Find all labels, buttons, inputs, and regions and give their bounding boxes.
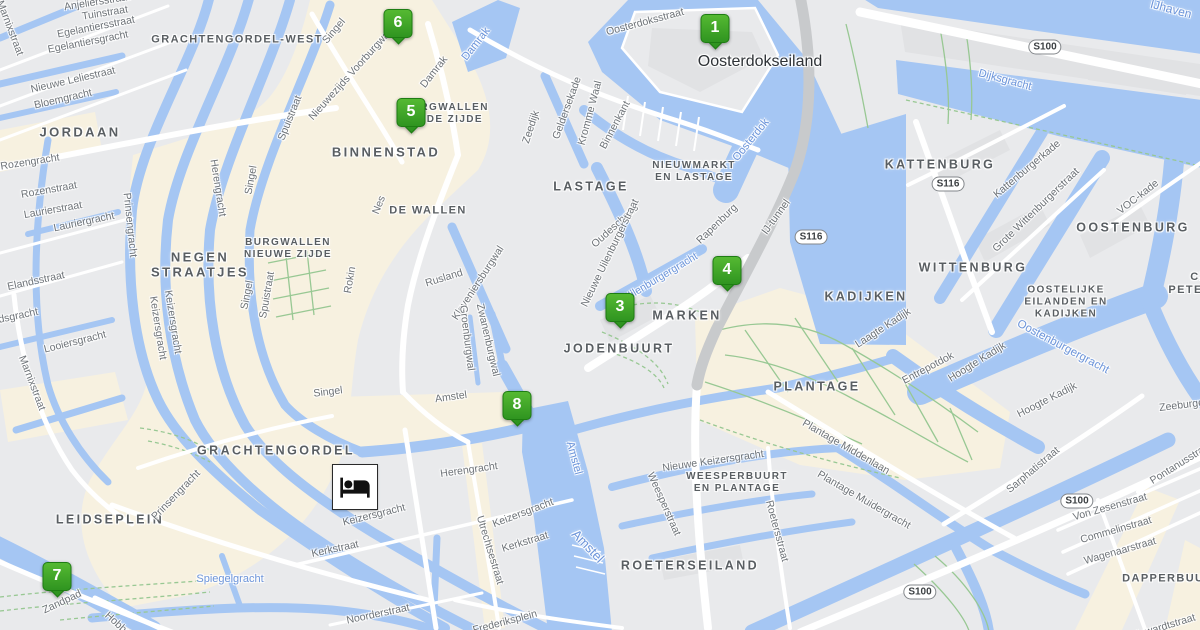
marker-number: 8: [503, 391, 532, 420]
marker-number: 6: [384, 9, 413, 38]
map-marker-4[interactable]: 4: [713, 256, 742, 285]
bed-icon: [339, 471, 371, 503]
marker-number: 1: [701, 14, 730, 43]
map-marker-8[interactable]: 8: [503, 391, 532, 420]
marker-number: 7: [43, 562, 72, 591]
map-base-graphics: [0, 0, 1200, 630]
marker-number: 4: [713, 256, 742, 285]
map-canvas[interactable]: JORDAANGRACHTENGORDEL-WESTNEGEN STRAATJE…: [0, 0, 1200, 630]
map-marker-1[interactable]: 1: [701, 14, 730, 43]
map-marker-6[interactable]: 6: [384, 9, 413, 38]
map-marker-5[interactable]: 5: [397, 98, 426, 127]
map-marker-3[interactable]: 3: [606, 293, 635, 322]
hotel-bed-icon[interactable]: [332, 464, 378, 510]
marker-number: 5: [397, 98, 426, 127]
marker-number: 3: [606, 293, 635, 322]
map-marker-7[interactable]: 7: [43, 562, 72, 591]
